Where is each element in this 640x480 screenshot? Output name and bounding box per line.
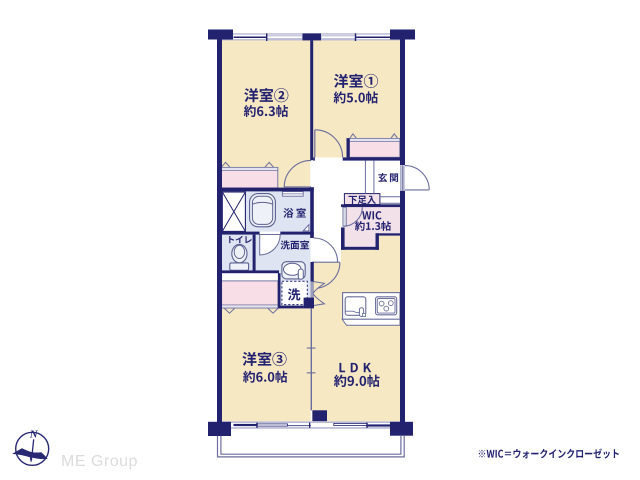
svg-text:ME Group: ME Group (61, 453, 138, 470)
svg-text:N: N (29, 429, 39, 441)
